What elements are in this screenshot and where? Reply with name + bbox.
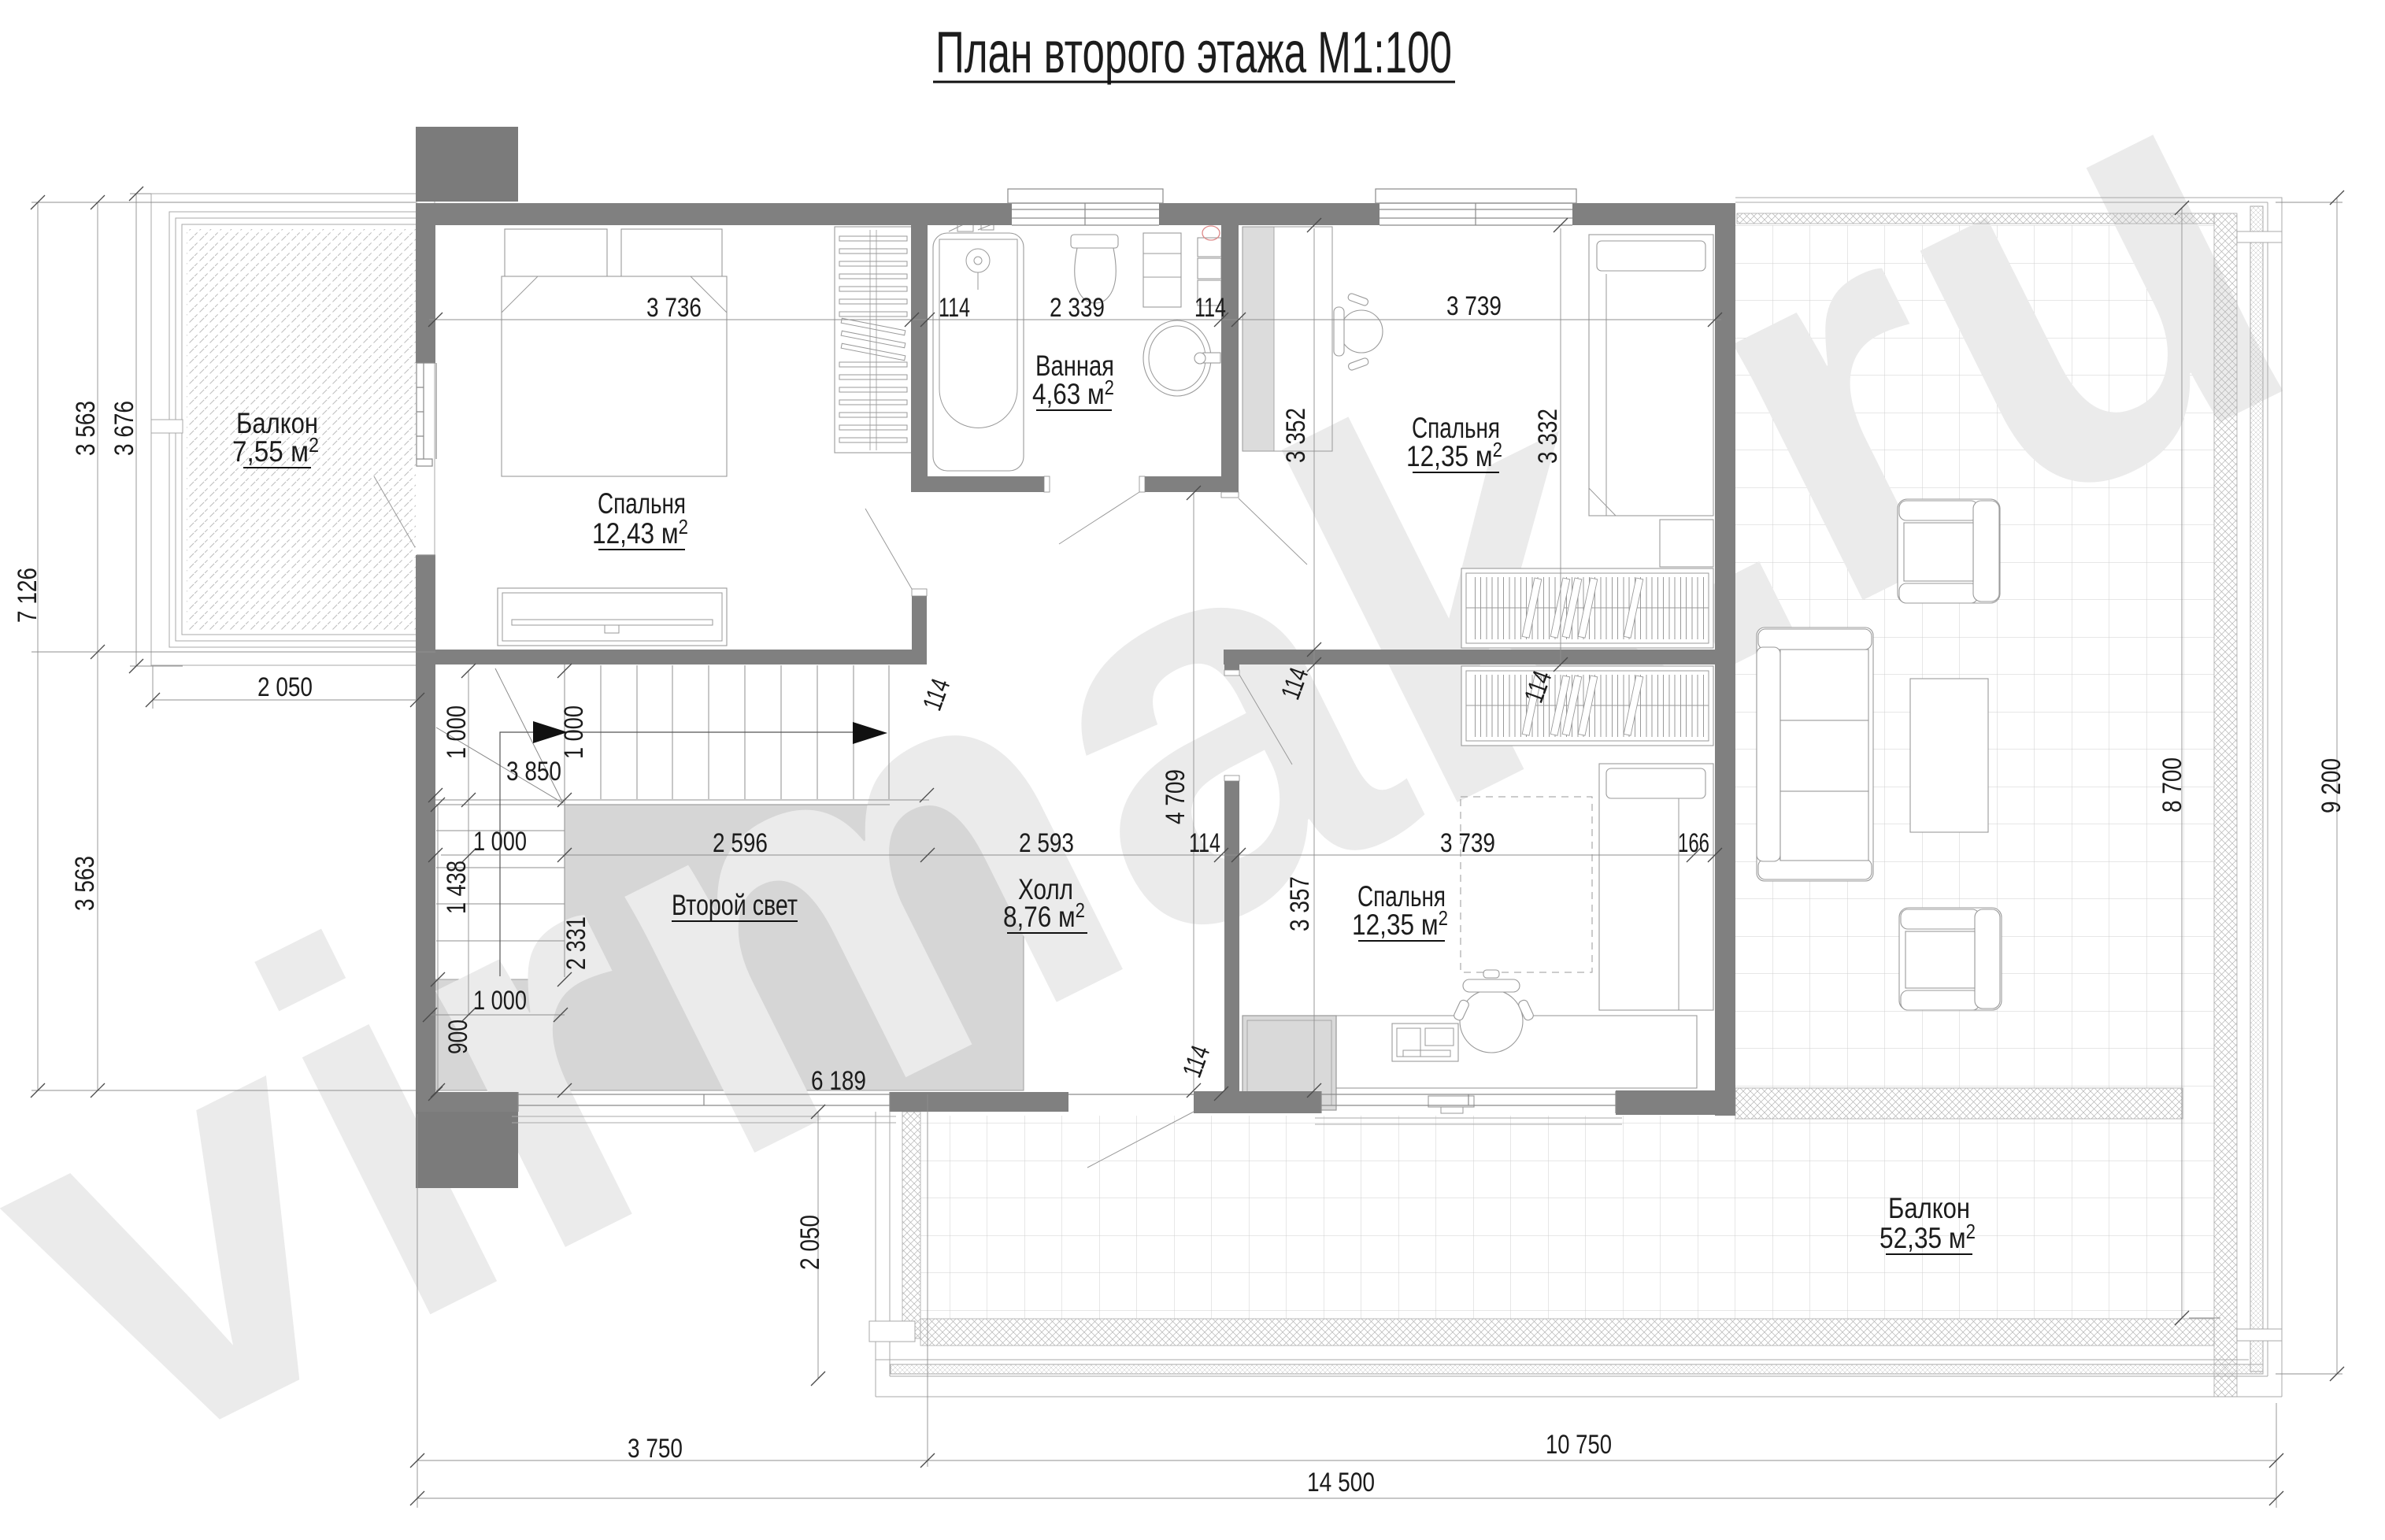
svg-text:3 332: 3 332 [1533,409,1563,464]
svg-text:Второй свет: Второй свет [672,889,798,921]
svg-text:114: 114 [1189,828,1220,858]
svg-text:Балкон: Балкон [1888,1192,1970,1224]
svg-text:10 750: 10 750 [1546,1430,1612,1460]
svg-text:Спальня: Спальня [598,487,686,520]
svg-text:7 126: 7 126 [13,568,43,623]
svg-text:Ванная: Ванная [1035,350,1114,382]
svg-text:3 739: 3 739 [1446,291,1502,321]
svg-text:2 331: 2 331 [561,916,591,970]
svg-text:1 000: 1 000 [559,705,589,759]
svg-text:2 050: 2 050 [257,672,313,702]
svg-text:114: 114 [1194,293,1226,323]
svg-text:3 850: 3 850 [506,757,561,787]
svg-text:4,63 м2: 4,63 м2 [1032,376,1114,410]
svg-text:12,43 м2: 12,43 м2 [592,515,688,550]
svg-text:План второго этажа М1:100: План второго этажа М1:100 [935,20,1452,85]
svg-text:2 050: 2 050 [795,1215,825,1270]
svg-text:2 339: 2 339 [1050,293,1105,323]
svg-text:900: 900 [443,1020,473,1054]
svg-text:3 352: 3 352 [1281,408,1311,463]
svg-text:3 563: 3 563 [71,401,101,456]
svg-text:2 596: 2 596 [713,828,768,858]
svg-text:Спальня: Спальня [1357,880,1446,913]
svg-text:2 593: 2 593 [1019,828,1074,858]
svg-text:3 563: 3 563 [70,856,100,911]
svg-text:1 438: 1 438 [442,861,472,914]
svg-text:3 739: 3 739 [1440,828,1495,858]
svg-text:1 000: 1 000 [442,705,472,759]
svg-text:12,35 м2: 12,35 м2 [1406,438,1502,472]
svg-text:166: 166 [1678,828,1709,858]
svg-text:8,76 м2: 8,76 м2 [1003,898,1085,933]
svg-text:8 700: 8 700 [2157,757,2187,813]
svg-text:114: 114 [939,293,970,323]
svg-text:14 500: 14 500 [1307,1468,1375,1497]
svg-text:3 676: 3 676 [109,401,139,456]
svg-text:9 200: 9 200 [2316,758,2346,813]
svg-text:Балкон: Балкон [236,407,318,439]
svg-text:1 000: 1 000 [473,986,527,1016]
svg-text:Спальня: Спальня [1412,412,1500,444]
svg-text:1 000: 1 000 [473,827,527,857]
svg-text:3 357: 3 357 [1285,876,1315,931]
svg-text:52,35 м2: 52,35 м2 [1879,1220,1976,1254]
svg-text:3 750: 3 750 [628,1434,683,1464]
svg-text:3 736: 3 736 [646,293,702,323]
svg-text:12,35 м2: 12,35 м2 [1352,906,1448,941]
svg-text:4 709: 4 709 [1161,769,1191,824]
svg-text:7,55 м2: 7,55 м2 [232,433,319,468]
svg-text:6 189: 6 189 [811,1066,866,1096]
